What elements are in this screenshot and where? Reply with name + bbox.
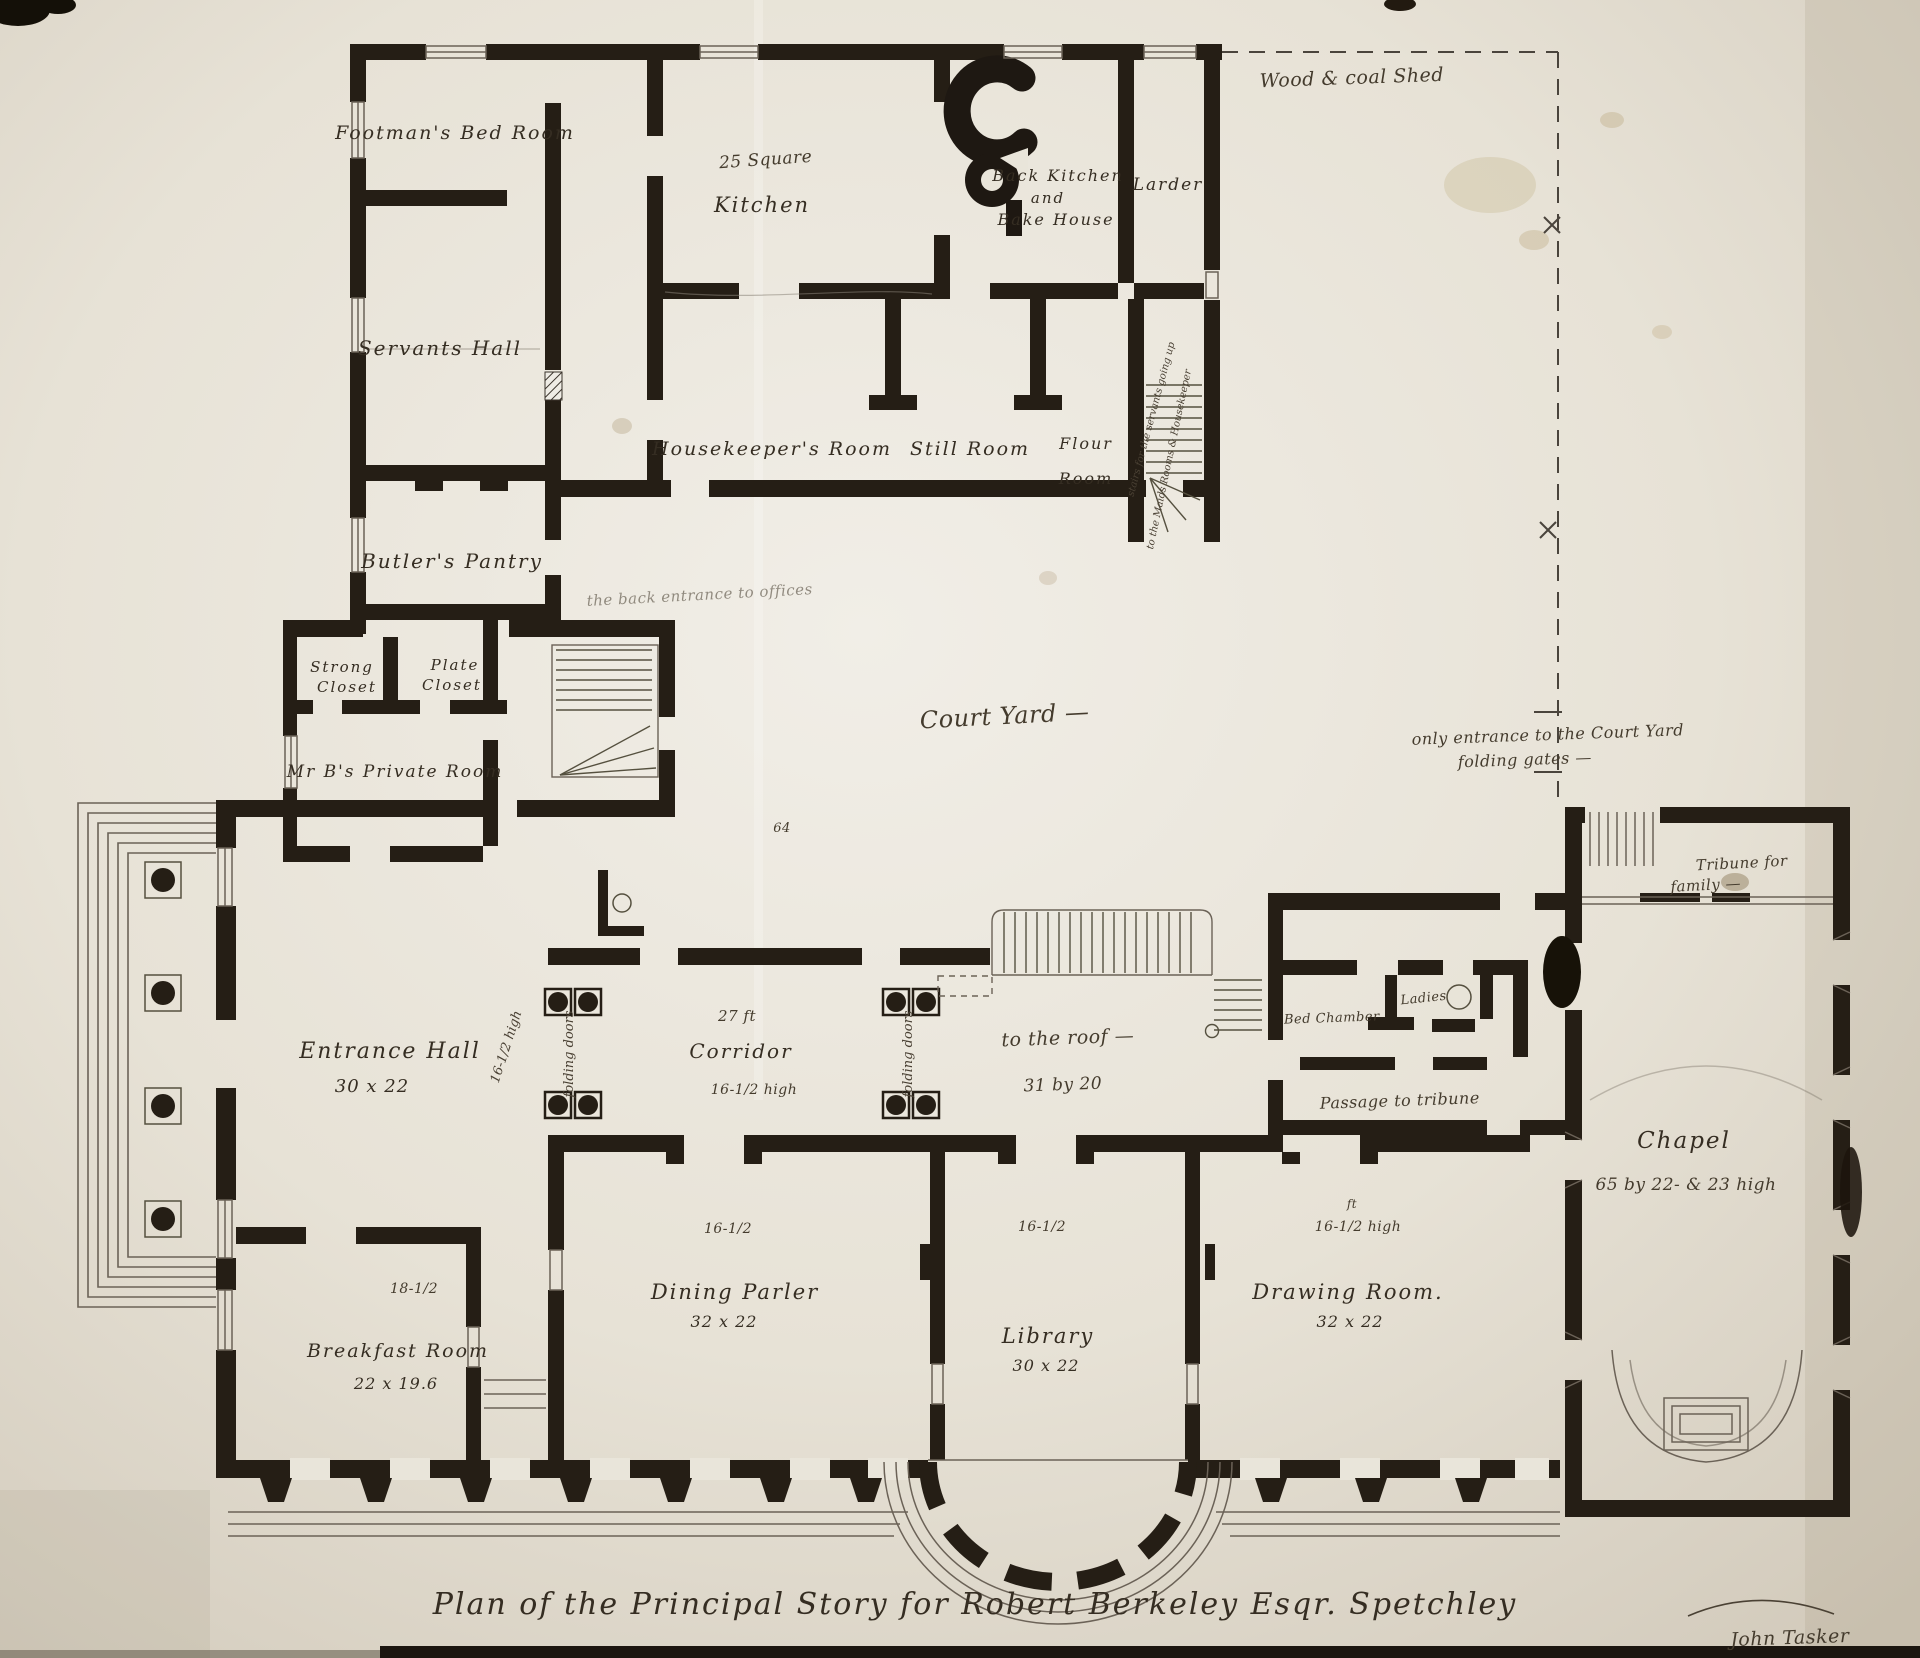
door-hatch — [545, 372, 562, 400]
label-back-kitchen-1: Back Kitchen — [991, 166, 1124, 185]
label-flour-room-1: Flour — [1058, 434, 1113, 453]
label-flour-room-2: Room — [1058, 469, 1113, 488]
label-entrance-hall: Entrance Hall — [298, 1039, 481, 1064]
label-library: Library — [1001, 1324, 1095, 1348]
label-larder: Larder — [1132, 175, 1204, 195]
label-breakfast-room: Breakfast Room — [306, 1340, 489, 1362]
floor-plan-drawing: Footman's Bed Room Servants Hall Butler'… — [0, 0, 1920, 1658]
drawing-signature: John Tasker — [1726, 1625, 1851, 1651]
label-servants-hall: Servants Hall — [358, 336, 522, 360]
label-kitchen: Kitchen — [713, 193, 810, 217]
label-stair-number: 64 — [773, 821, 791, 836]
label-still-room: Still Room — [910, 438, 1030, 460]
label-folding-doors-west: folding doors — [562, 1010, 577, 1098]
label-stair-hall-2: 31 by 20 — [1023, 1074, 1102, 1097]
label-stair-hall-1: to the roof — — [1001, 1025, 1134, 1052]
label-housekeepers-room: Housekeeper's Room — [651, 438, 892, 460]
label-corridor-ft: 27 ft — [717, 1007, 756, 1025]
label-dining-parler: Dining Parler — [650, 1280, 819, 1304]
label-back-kitchen-2: and — [1031, 189, 1065, 207]
label-chapel: Chapel — [1637, 1128, 1731, 1154]
label-entrance-hall-size: 30 x 22 — [335, 1076, 409, 1097]
label-corridor: Corridor — [689, 1039, 792, 1063]
label-drawing-ft: ft — [1346, 1197, 1357, 1211]
label-mr-bs-private-room: Mr B's Private Room — [286, 762, 504, 782]
label-chapel-size: 65 by 22- & 23 high — [1596, 1175, 1777, 1195]
label-strong-closet-2: Closet — [317, 678, 377, 696]
label-tribune-2: family — — [1669, 874, 1741, 896]
floor-plan-sheet: Footman's Bed Room Servants Hall Butler'… — [0, 0, 1920, 1658]
drawing-title: Plan of the Principal Story for Robert B… — [432, 1587, 1518, 1622]
label-dining-height: 16-1/2 — [704, 1221, 752, 1237]
label-library-size: 30 x 22 — [1013, 1356, 1080, 1375]
label-library-height: 16-1/2 — [1018, 1219, 1066, 1235]
label-dining-size: 32 x 22 — [691, 1312, 758, 1331]
label-drawing-room: Drawing Room. — [1251, 1280, 1443, 1304]
label-drawing-size: 32 x 22 — [1317, 1312, 1384, 1331]
label-footmans-bed-room: Footman's Bed Room — [334, 122, 575, 144]
label-back-kitchen-3: Bake House — [996, 210, 1114, 229]
label-breakfast-size: 22 x 19.6 — [353, 1374, 438, 1393]
label-plate-closet-1: Plate — [430, 656, 480, 674]
label-drawing-height: 16-1/2 high — [1315, 1219, 1402, 1235]
label-breakfast-height: 18-1/2 — [390, 1281, 438, 1297]
label-plate-closet-2: Closet — [422, 676, 482, 694]
label-corridor-height: 16-1/2 high — [711, 1082, 798, 1098]
label-folding-doors-east: folding doors — [901, 1010, 916, 1098]
label-butlers-pantry: Butler's Pantry — [360, 549, 543, 573]
label-strong-closet-1: Strong — [310, 658, 374, 676]
